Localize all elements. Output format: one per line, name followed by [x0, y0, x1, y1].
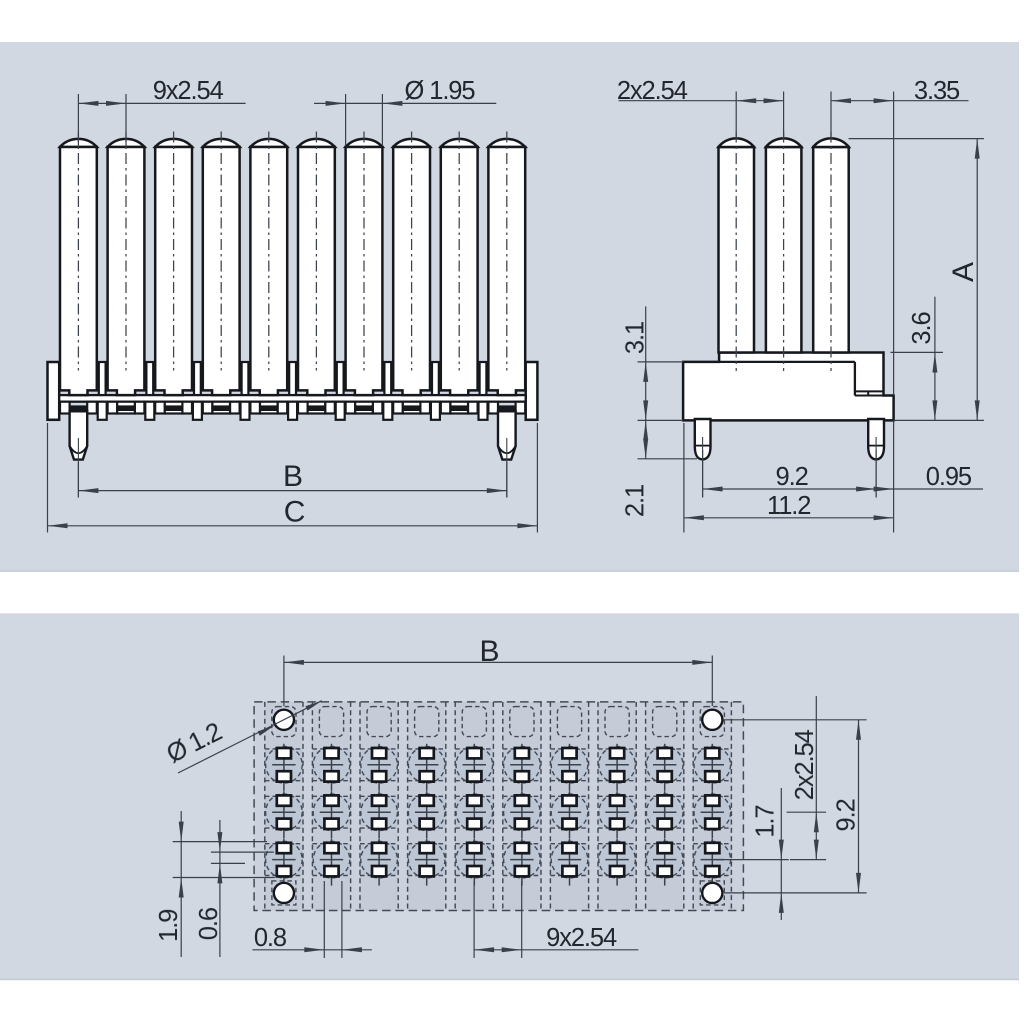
svg-text:9x2.54: 9x2.54	[546, 924, 617, 952]
svg-text:B: B	[283, 460, 302, 493]
svg-text:3.35: 3.35	[914, 77, 960, 105]
svg-text:A: A	[947, 262, 980, 282]
svg-text:9.2: 9.2	[833, 799, 861, 831]
svg-text:2.1: 2.1	[621, 485, 649, 517]
svg-text:3.6: 3.6	[908, 312, 936, 345]
svg-text:3.1: 3.1	[621, 322, 649, 354]
svg-text:0.95: 0.95	[926, 463, 972, 491]
svg-text:9.2: 9.2	[776, 463, 808, 491]
svg-text:0.8: 0.8	[254, 924, 287, 952]
svg-text:1.9: 1.9	[155, 910, 183, 942]
svg-text:Ø 1.95: Ø 1.95	[405, 77, 476, 105]
svg-text:B: B	[479, 635, 498, 668]
svg-text:11.2: 11.2	[767, 492, 810, 520]
svg-text:C: C	[284, 496, 305, 529]
svg-text:0.6: 0.6	[195, 907, 223, 940]
svg-text:2x2.54: 2x2.54	[617, 77, 688, 105]
svg-text:1.7: 1.7	[752, 806, 780, 838]
svg-text:2x2.54: 2x2.54	[791, 729, 819, 800]
svg-text:9x2.54: 9x2.54	[153, 77, 224, 105]
